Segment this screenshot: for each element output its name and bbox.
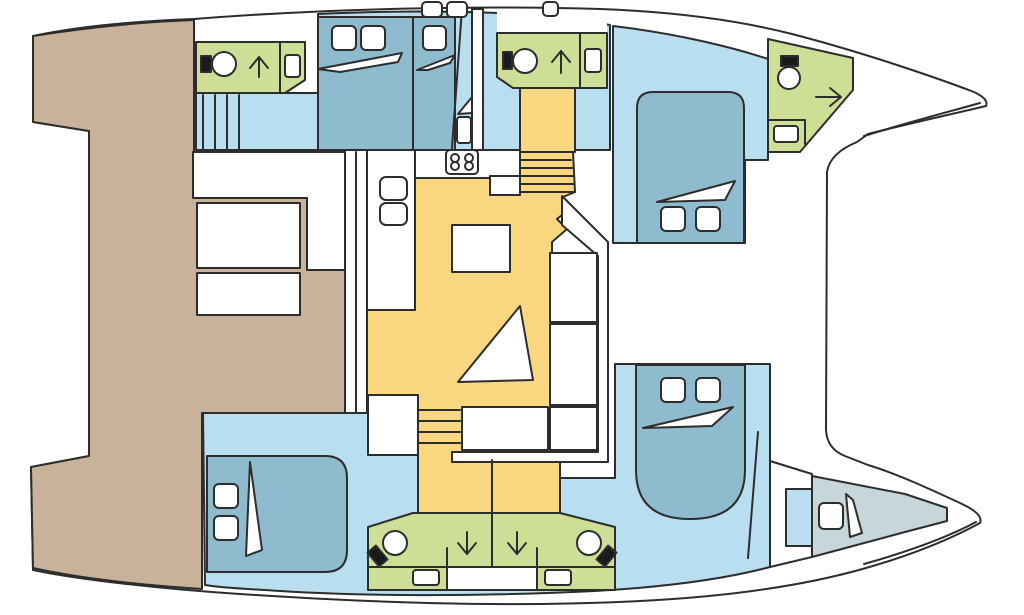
cabin-top-forward-bed [637,92,744,243]
toilet-bowl-icon [577,531,601,555]
sink-icon [380,203,407,225]
hull-top-cabins [318,17,455,150]
catamaran-floorplan [0,0,1024,615]
deck-hatch-icon [422,2,442,17]
pillow [457,117,471,143]
toilet-bowl-icon [212,52,236,76]
galley-counter-side [367,150,415,310]
pillow [696,378,720,402]
settee-cushion [462,407,548,450]
pillow [332,26,356,50]
plan-root [31,2,987,604]
cockpit-table [197,203,300,268]
cabin-top-forward [637,92,744,243]
toilet-bowl-icon [778,67,800,89]
head-top-mid [497,33,607,88]
cabin-bottom-forward [636,365,745,519]
saloon-stairs-corridor-top [520,88,575,152]
cabin-bottom-aft-bed [207,456,347,572]
sink-icon [380,177,407,200]
pillow [214,484,238,508]
cabin-bottom-aft [207,456,347,572]
pillow [214,516,238,540]
toilet-bowl-icon [513,49,537,73]
pillow [819,503,843,529]
settee-cushion [550,253,597,322]
heads-bottom [368,513,617,590]
toilet-cistern [201,56,211,72]
hull-top-passage-wall [472,9,483,150]
pillow [361,26,385,50]
heads-shower-floor [447,567,537,590]
galley-island [452,225,510,272]
pillow [661,207,685,231]
cabin-bottom-forward-bed [636,365,745,519]
bow-passage-step [786,489,812,546]
stove-icon [446,150,478,174]
settee-cushion [550,407,597,450]
cockpit-bench-aft [197,273,300,315]
galley-cabinet [490,176,520,195]
toilet-cistern [781,56,798,66]
saloon-stairs-landing [368,395,418,455]
sink-icon [413,570,439,585]
floorplan-canvas [0,0,1024,615]
deck-hatch-icon [447,2,467,17]
sink-icon [285,55,300,77]
sink-icon [774,126,798,142]
sink-icon [585,49,601,72]
pillow [661,378,685,402]
pillow [423,26,446,50]
sink-icon [545,570,571,585]
settee-cushion [550,324,597,405]
pillow [696,207,720,231]
deck-hatch-icon [543,2,558,16]
toilet-bowl-icon [383,531,407,555]
head-top-aft [196,42,305,93]
toilet-cistern [503,52,512,69]
